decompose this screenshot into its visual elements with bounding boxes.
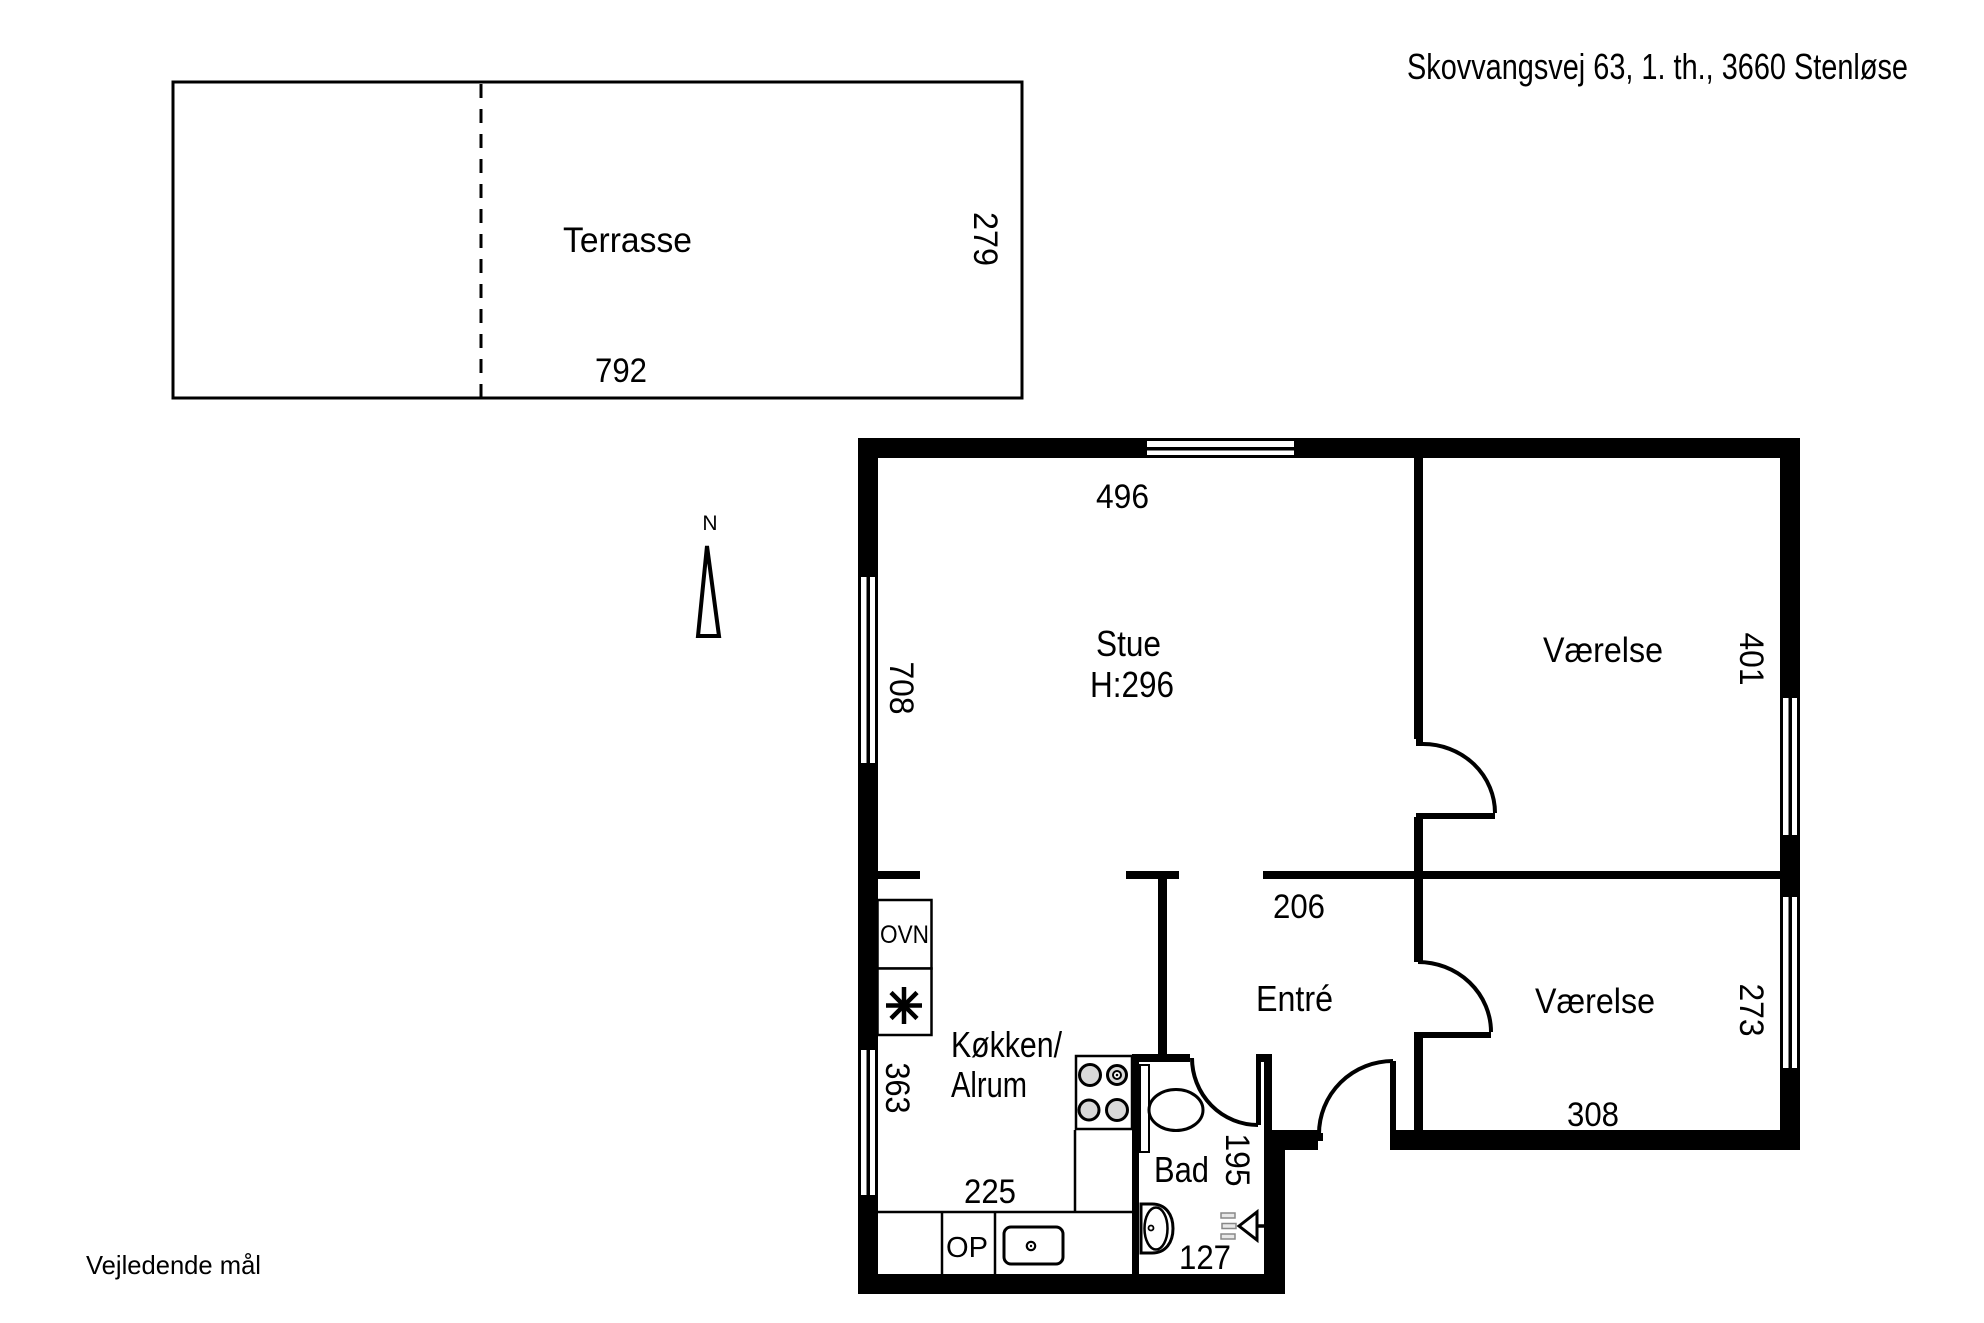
svg-text:OVN: OVN [880,921,929,949]
svg-text:195: 195 [1218,1134,1256,1187]
svg-text:206: 206 [1273,888,1325,926]
svg-text:Bad: Bad [1154,1149,1209,1190]
svg-text:308: 308 [1567,1096,1619,1134]
svg-text:792: 792 [595,352,647,390]
svg-text:N: N [702,512,717,535]
svg-text:401: 401 [1732,633,1770,686]
svg-text:279: 279 [966,212,1004,266]
svg-text:Køkken/: Køkken/ [951,1024,1062,1065]
svg-text:363: 363 [878,1063,916,1114]
svg-text:Værelse: Værelse [1543,631,1663,670]
svg-text:H:296: H:296 [1090,664,1174,705]
svg-text:Skovvangsvej 63, 1. th., 3660: Skovvangsvej 63, 1. th., 3660 Stenløse [1407,46,1908,87]
svg-text:Alrum: Alrum [951,1064,1027,1105]
svg-text:Vejledende mål: Vejledende mål [86,1250,261,1280]
svg-text:708: 708 [882,662,920,715]
svg-text:Entré: Entré [1256,978,1333,1019]
svg-text:127: 127 [1179,1239,1231,1277]
svg-text:Terrasse: Terrasse [563,221,692,260]
svg-text:225: 225 [964,1173,1016,1211]
svg-text:273: 273 [1732,984,1770,1037]
svg-text:Stue: Stue [1096,623,1161,664]
svg-text:496: 496 [1096,478,1149,516]
svg-text:OP: OP [946,1232,988,1264]
svg-text:Værelse: Værelse [1535,982,1655,1021]
